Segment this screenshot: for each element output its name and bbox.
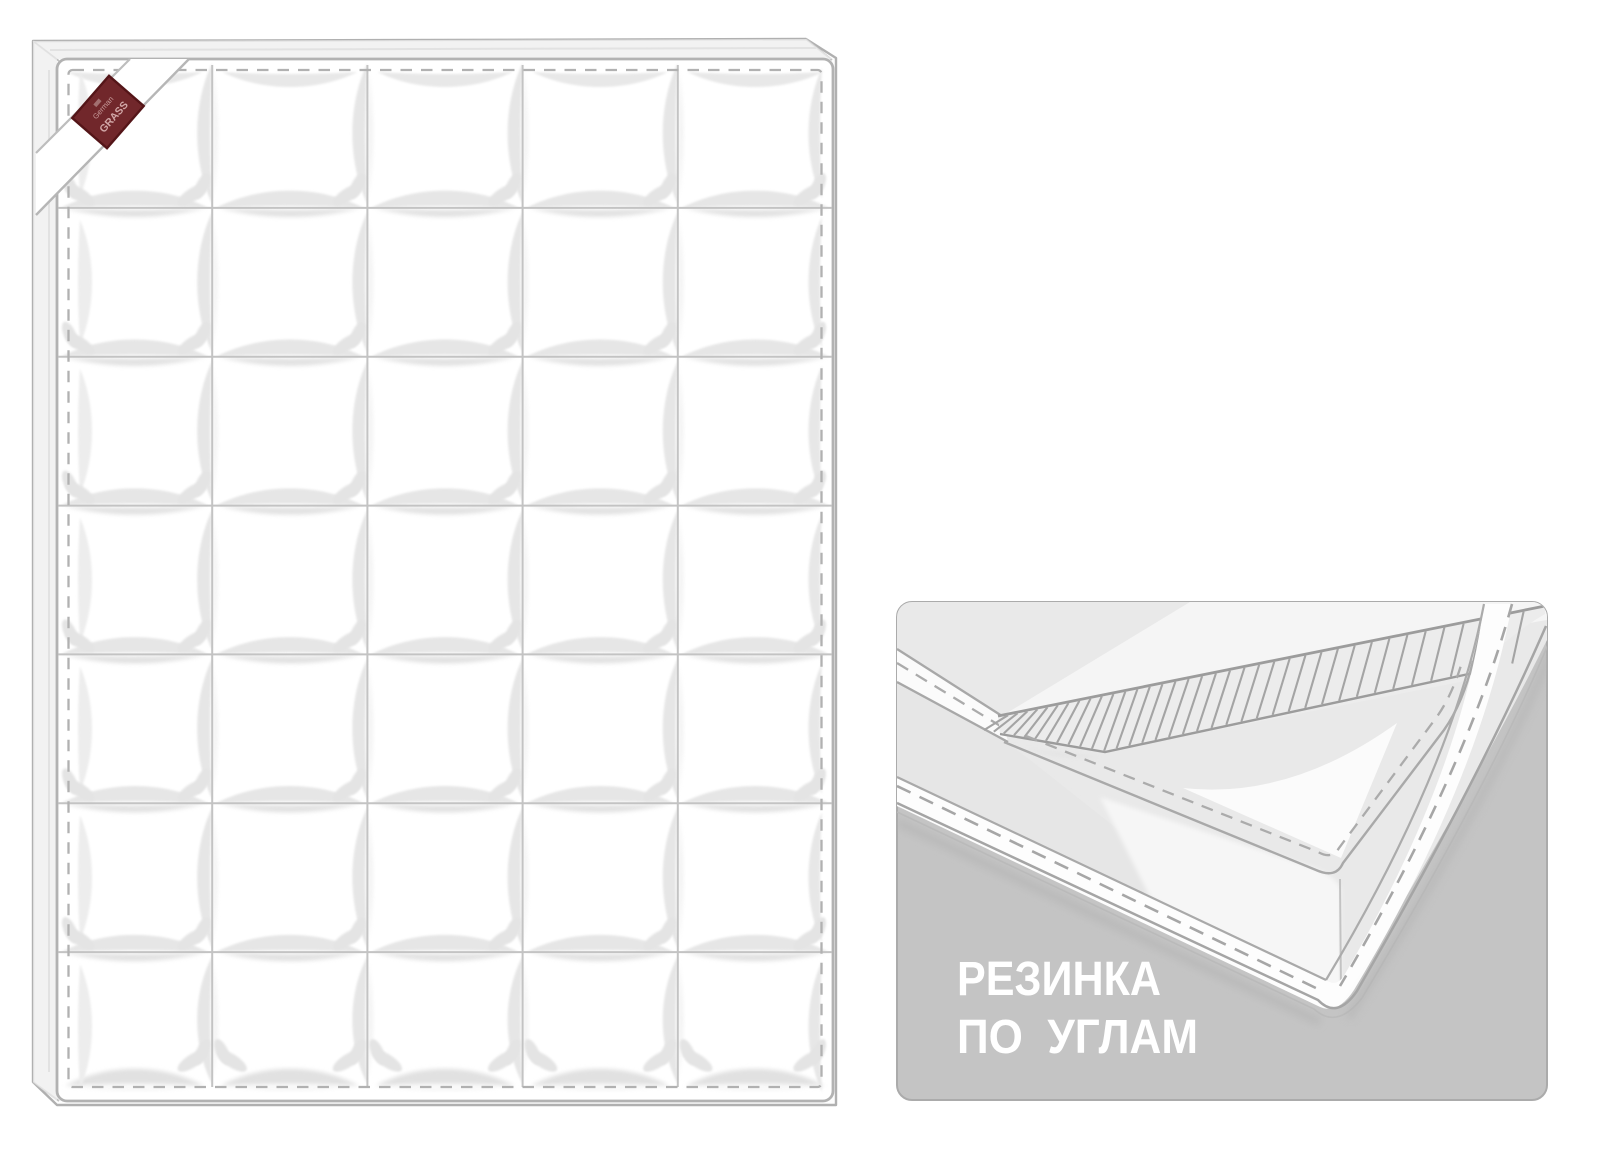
svg-text:РЕЗИНКА: РЕЗИНКА	[957, 953, 1161, 1006]
svg-text:ПО УГЛАМ: ПО УГЛАМ	[957, 1011, 1198, 1064]
